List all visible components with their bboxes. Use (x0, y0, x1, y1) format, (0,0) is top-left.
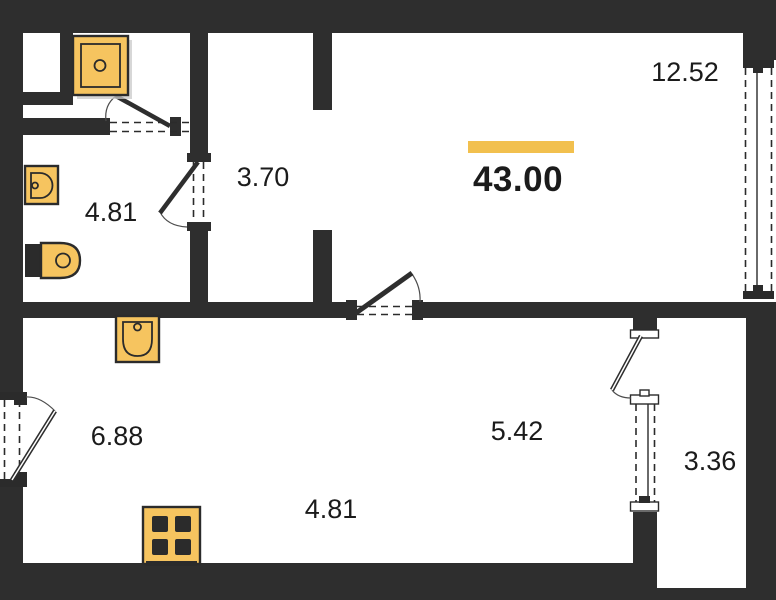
wall-segment (633, 512, 657, 600)
window-balcony-partition (631, 390, 659, 511)
stove-icon (143, 507, 200, 566)
stove-burner (175, 516, 191, 532)
door-leaf-core (612, 336, 641, 390)
wall-segment (0, 0, 23, 392)
room-label-room-lower: 4.81 (298, 496, 364, 523)
door-swing-arc (160, 212, 187, 227)
door-cap-nub (14, 398, 27, 405)
room-label-living: 12.52 (645, 59, 725, 86)
wall-segment (0, 563, 633, 600)
stove-burner (152, 516, 168, 532)
room-label-balcony: 3.36 (676, 448, 744, 475)
wall-segment (23, 92, 73, 105)
wall-segment (743, 33, 776, 60)
door-swing-arc (26, 397, 55, 411)
wall-segment (346, 300, 357, 320)
wall-segment (420, 302, 776, 318)
window-cap (631, 502, 659, 511)
window-cap-nub (753, 285, 763, 292)
total-area-underline (468, 141, 574, 153)
shower-tray-icon (73, 36, 132, 99)
door-leaf (116, 96, 170, 126)
floor-plan: 43.00 12.52 3.70 4.81 6.88 5.42 4.81 3.3… (0, 0, 776, 600)
wall-segment (0, 0, 776, 33)
floor-plan-drawing (0, 0, 776, 600)
total-area-label: 43.00 (458, 162, 578, 197)
door-cap (631, 330, 659, 338)
bathroom-sink-icon (25, 166, 58, 204)
wall-segment (187, 153, 211, 162)
door-living-lower (356, 273, 420, 315)
wall-segment (170, 117, 181, 136)
door-balcony (612, 330, 659, 398)
wall-segment (190, 33, 208, 153)
stove-body (143, 507, 200, 564)
room-label-hallway: 3.70 (230, 164, 296, 191)
window-cap-nub (640, 390, 649, 396)
room-label-bathroom: 4.81 (78, 199, 144, 226)
wall-segment (746, 302, 776, 600)
kitchen-sink-icon (116, 316, 159, 362)
wall-segment (60, 33, 73, 93)
wall-segment (412, 300, 423, 320)
stove-burner (175, 539, 191, 555)
door-swing-arc (412, 274, 420, 302)
stove-base (146, 561, 197, 566)
door-balcony-kitchen (0, 392, 55, 487)
room-label-kitchen: 6.88 (84, 423, 150, 450)
door-leaf-core (12, 411, 55, 480)
room-label-room-center: 5.42 (483, 418, 551, 445)
wall-segment (0, 302, 352, 318)
toilet-tank (25, 244, 41, 277)
window-cap-nub (753, 66, 763, 73)
wall-segment (657, 588, 776, 600)
wall-segment (187, 222, 211, 231)
door-bathroom (160, 162, 204, 227)
toilet-bowl (41, 243, 80, 278)
wall-segment (23, 118, 110, 135)
door-swing-arc (106, 96, 116, 121)
window-living (743, 60, 774, 299)
toilet-icon (25, 243, 80, 278)
door-leaf (160, 162, 198, 213)
stove-burner (152, 539, 168, 555)
window-cap (743, 291, 774, 299)
wall-segment (313, 33, 332, 110)
door-swing-arc (612, 390, 631, 398)
